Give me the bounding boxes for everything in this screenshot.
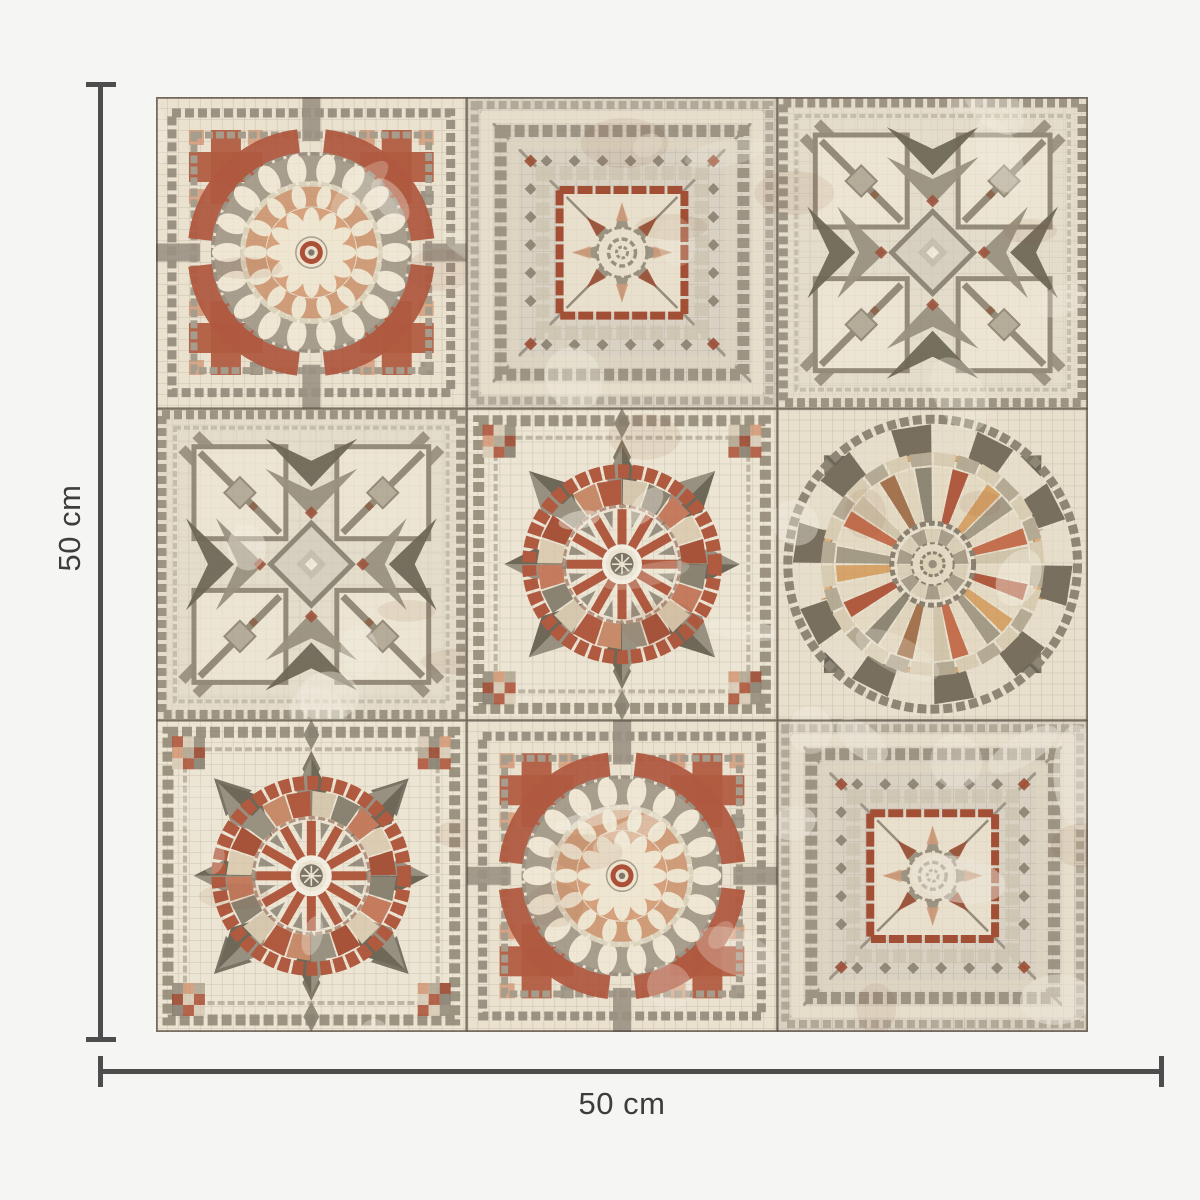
- width-dimension-label: 50 cm: [579, 1086, 666, 1122]
- height-dimension-line: [98, 84, 103, 1040]
- height-dimension-cap-bottom: [86, 1037, 116, 1042]
- mosaic-pattern-graphic: [156, 97, 1088, 1032]
- width-dimension-cap-right: [1159, 1056, 1164, 1087]
- height-dimension-label: 50 cm: [52, 485, 88, 572]
- width-dimension-line: [100, 1069, 1162, 1074]
- product-dimension-canvas: 50 cm 50 cm: [0, 0, 1200, 1200]
- mosaic-tile-panel-image: [156, 97, 1088, 1032]
